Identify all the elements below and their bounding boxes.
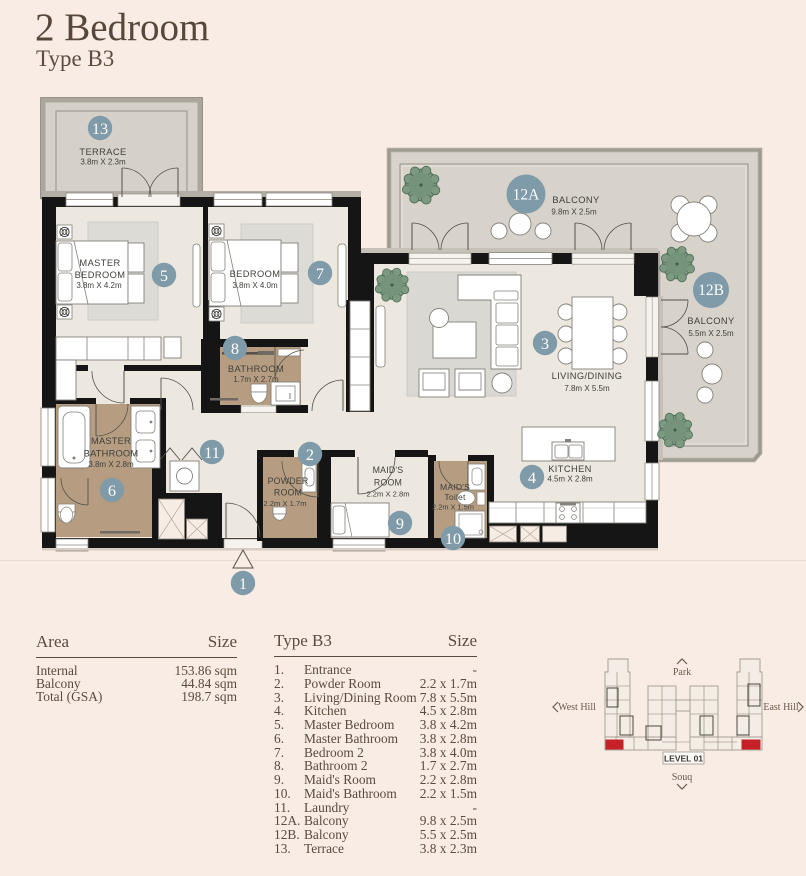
svg-text:TERRACE: TERRACE	[79, 147, 126, 157]
svg-text:BALCONY: BALCONY	[552, 195, 599, 205]
svg-text:9.8m X 2.5m: 9.8m X 2.5m	[551, 208, 597, 217]
svg-text:5: 5	[160, 266, 168, 285]
svg-text:Park: Park	[673, 667, 691, 678]
svg-text:BEDROOM: BEDROOM	[75, 270, 126, 280]
svg-text:12B: 12B	[698, 282, 724, 299]
svg-text:3: 3	[541, 334, 549, 353]
svg-text:2.2m X 1.7m: 2.2m X 1.7m	[263, 499, 306, 508]
svg-text:3.8m X 4.2m: 3.8m X 4.2m	[76, 281, 122, 290]
svg-text:West Hill: West Hill	[558, 702, 596, 713]
svg-text:4: 4	[528, 468, 536, 487]
svg-text:1: 1	[239, 574, 247, 593]
svg-text:KITCHEN: KITCHEN	[548, 464, 592, 474]
svg-text:5.5m X 2.5m: 5.5m X 2.5m	[688, 329, 734, 338]
svg-text:11: 11	[204, 443, 220, 462]
svg-text:6: 6	[108, 481, 116, 500]
svg-text:BATHROOM: BATHROOM	[84, 449, 139, 459]
svg-text:BEDROOM: BEDROOM	[230, 269, 281, 279]
svg-text:LEVEL 01: LEVEL 01	[664, 754, 703, 764]
svg-text:POWDER: POWDER	[268, 476, 309, 486]
svg-text:13: 13	[92, 119, 108, 138]
svg-text:12A: 12A	[513, 187, 541, 204]
svg-text:BATHROOM: BATHROOM	[228, 364, 284, 374]
svg-text:3.8m X 4.0m: 3.8m X 4.0m	[232, 281, 278, 290]
svg-text:ROOM: ROOM	[274, 488, 302, 498]
svg-text:3.8m X 2.8m: 3.8m X 2.8m	[88, 460, 134, 469]
svg-text:2.2m X 1.5m: 2.2m X 1.5m	[432, 503, 474, 512]
svg-text:3.8m X 2.3m: 3.8m X 2.3m	[80, 158, 126, 167]
svg-text:10: 10	[445, 529, 461, 548]
svg-text:BALCONY: BALCONY	[687, 316, 734, 326]
svg-text:East Hill: East Hill	[763, 702, 798, 713]
svg-text:2.2m X 2.8m: 2.2m X 2.8m	[366, 490, 409, 499]
svg-text:7.8m X 5.5m: 7.8m X 5.5m	[564, 384, 610, 393]
svg-text:MAID'S: MAID'S	[440, 482, 470, 492]
svg-text:8: 8	[231, 339, 239, 358]
svg-text:9: 9	[396, 514, 404, 533]
svg-text:MASTER: MASTER	[91, 436, 131, 446]
svg-text:2: 2	[306, 445, 314, 464]
svg-text:4.5m X 2.8m: 4.5m X 2.8m	[547, 475, 593, 484]
svg-text:MAID'S: MAID'S	[373, 465, 404, 475]
svg-text:MASTER: MASTER	[79, 258, 120, 268]
svg-text:Toilet: Toilet	[444, 492, 466, 502]
svg-text:Souq: Souq	[672, 772, 693, 783]
svg-text:1.7m X 2.7m: 1.7m X 2.7m	[233, 375, 279, 384]
svg-text:ROOM: ROOM	[374, 478, 402, 488]
svg-text:LIVING/DINING: LIVING/DINING	[552, 371, 623, 381]
svg-text:7: 7	[316, 264, 324, 283]
